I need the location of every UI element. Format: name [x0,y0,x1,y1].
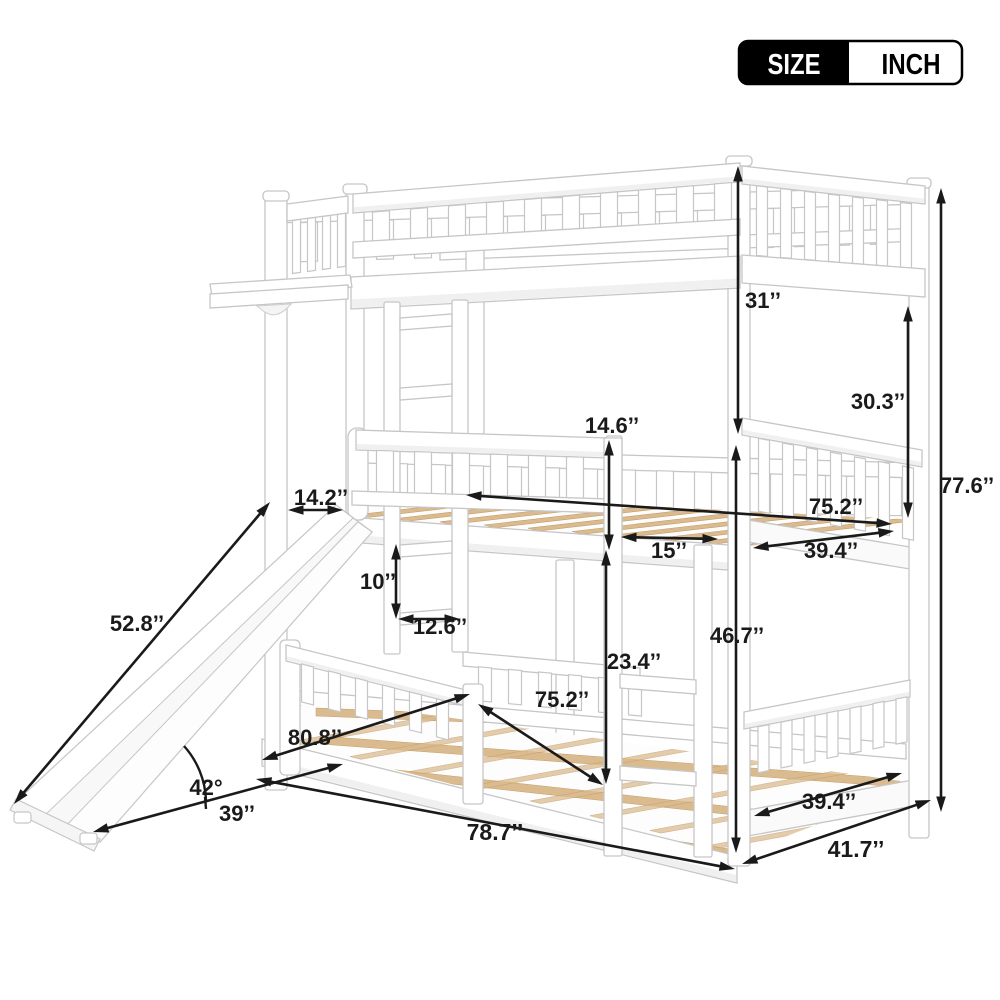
svg-text:41.7’’: 41.7’’ [828,836,885,862]
svg-text:14.6’’: 14.6’’ [585,413,639,438]
svg-text:30.3’’: 30.3’’ [851,389,905,414]
svg-text:80.8’’: 80.8’’ [288,725,342,750]
svg-text:INCH: INCH [882,49,941,81]
svg-text:15’’: 15’’ [651,538,687,563]
svg-text:10’’: 10’’ [360,569,396,594]
svg-text:23.4’’: 23.4’’ [607,649,661,674]
svg-text:75.2’’: 75.2’’ [535,687,589,712]
svg-text:42°: 42° [189,775,222,800]
svg-text:12.6’’: 12.6’’ [413,614,467,639]
svg-text:SIZE: SIZE [768,49,821,81]
svg-text:77.6’’: 77.6’’ [940,473,994,498]
svg-text:39’’: 39’’ [219,801,255,826]
svg-text:78.7’’: 78.7’’ [467,819,524,845]
svg-text:31’’: 31’’ [745,288,781,313]
svg-text:46.7’’: 46.7’’ [710,623,764,648]
svg-text:75.2’’: 75.2’’ [809,494,863,519]
svg-text:39.4’’: 39.4’’ [804,538,858,563]
svg-text:39.4’’: 39.4’’ [802,789,856,814]
svg-text:14.2’’: 14.2’’ [294,485,348,510]
svg-text:52.8’’: 52.8’’ [110,611,164,636]
